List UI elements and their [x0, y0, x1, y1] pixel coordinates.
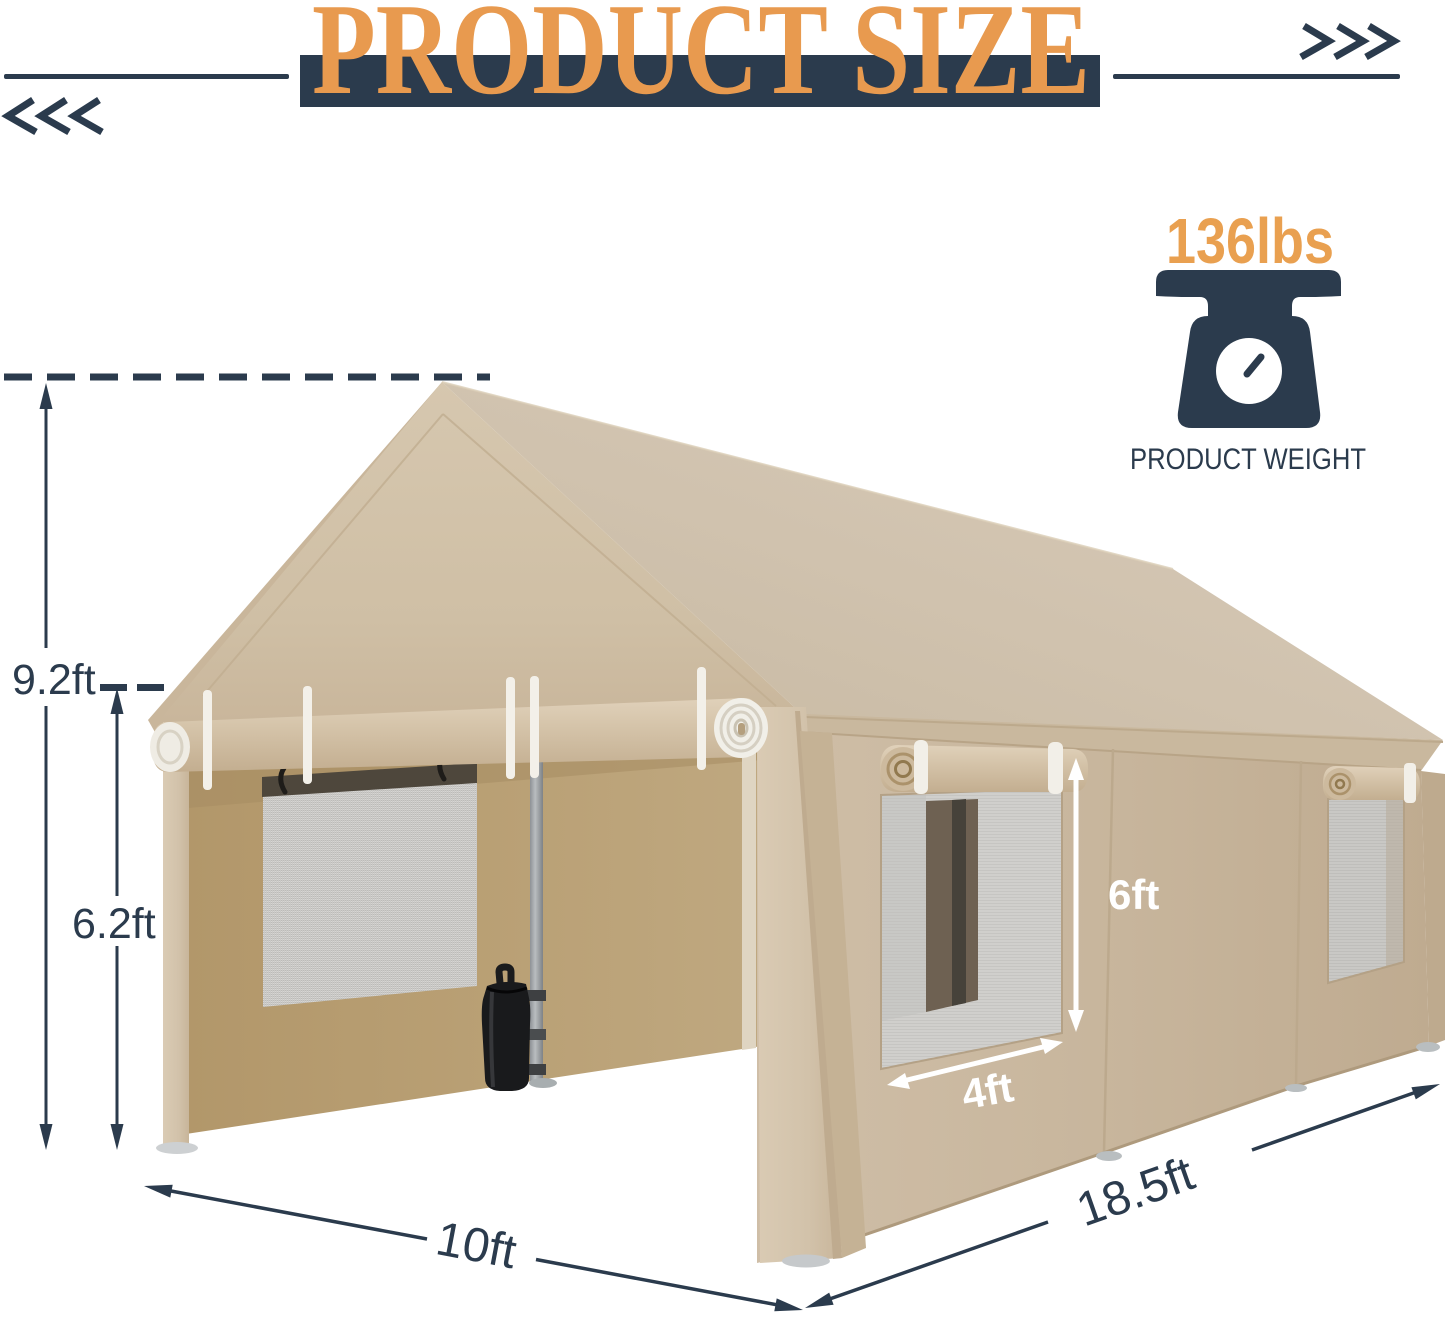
svg-text:6ft: 6ft	[1108, 871, 1159, 918]
svg-text:4ft: 4ft	[958, 1063, 1017, 1118]
svg-text:10ft: 10ft	[432, 1212, 521, 1279]
svg-text:PRODUCT WEIGHT: PRODUCT WEIGHT	[1130, 443, 1366, 476]
svg-text:PRODUCT SIZE: PRODUCT SIZE	[312, 0, 1090, 122]
svg-text:6.2ft: 6.2ft	[72, 900, 156, 948]
svg-text:136lbs: 136lbs	[1166, 205, 1334, 277]
svg-text:18.5ft: 18.5ft	[1070, 1147, 1201, 1237]
svg-text:9.2ft: 9.2ft	[12, 656, 96, 704]
